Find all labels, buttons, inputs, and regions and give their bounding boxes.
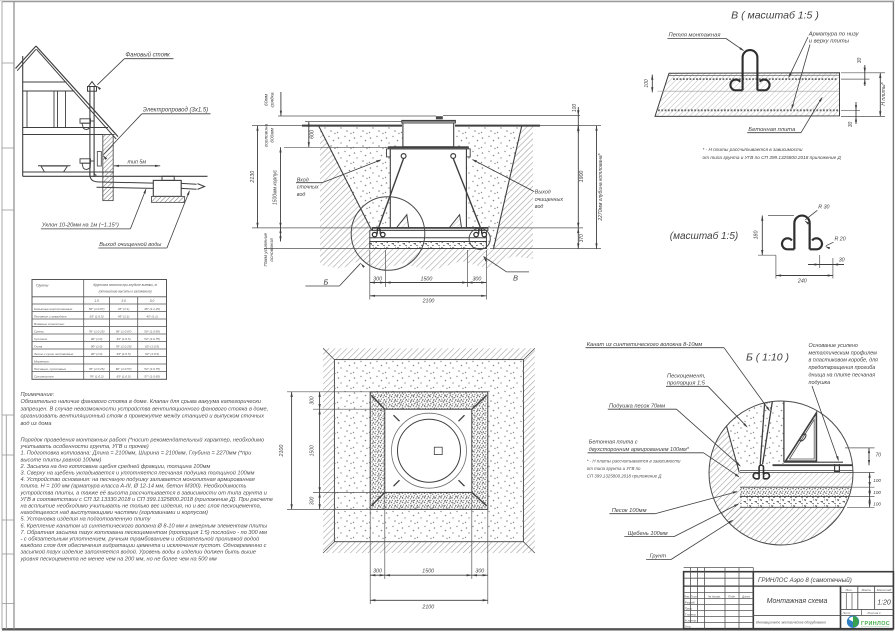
- svg-text:Основание усилено: Основание усилено: [809, 343, 858, 349]
- svg-text:Лист: Лист: [842, 611, 851, 615]
- svg-text:4. Устройство основания: на пе: 4. Устройство основания: на песчаную под…: [21, 476, 255, 483]
- svg-text:Утв.: Утв.: [685, 624, 692, 628]
- svg-text:5.0: 5.0: [150, 299, 155, 303]
- svg-text:63° (1:0.5): 63° (1:0.5): [145, 344, 159, 348]
- svg-text:30: 30: [839, 258, 845, 264]
- svg-text:Бетонная плита с: Бетонная плита с: [589, 439, 638, 445]
- svg-text:Фановый стояк: Фановый стояк: [125, 52, 171, 59]
- svg-text:300: 300: [475, 569, 484, 575]
- svg-text:63° (1:0.5): 63° (1:0.5): [90, 314, 104, 318]
- svg-text:и верху плиты: и верху плиты: [809, 39, 850, 45]
- svg-text:63° (1:0.5): 63° (1:0.5): [117, 374, 131, 378]
- svg-text:вод: вод: [297, 192, 306, 198]
- svg-text:Песчаные, супесчаные: Песчаные, супесчаные: [34, 367, 66, 371]
- svg-text:устройства плиты, а также её в: устройства плиты, а также её высота расс…: [20, 489, 267, 496]
- svg-text:R 30: R 30: [818, 205, 829, 211]
- svg-text:600: 600: [310, 130, 316, 139]
- svg-text:Петля монтажная: Петля монтажная: [669, 33, 721, 39]
- svg-text:горловина: горловина: [264, 123, 269, 147]
- svg-text:Масштаб: Масштаб: [877, 588, 892, 592]
- svg-text:300: 300: [373, 569, 382, 575]
- svg-text:грядка: грядка: [269, 92, 275, 107]
- svg-text:Подушка песок 70мм: Подушка песок 70мм: [609, 403, 665, 409]
- svg-text:организовать вентиляционный ст: организовать вентиляционный стояк в пром…: [21, 413, 265, 420]
- svg-text:каждого слоя для обеспечения г: каждого слоя для обеспечения гидратации …: [21, 543, 267, 549]
- svg-text:Выход: Выход: [535, 190, 551, 196]
- svg-text:Грунт: Грунт: [650, 554, 667, 560]
- svg-text:Щебень 100мм: Щебень 100мм: [628, 531, 668, 537]
- svg-text:2130: 2130: [250, 171, 256, 184]
- svg-text:100: 100: [644, 79, 650, 88]
- svg-text:Б ( 1:10 ): Б ( 1:10 ): [746, 352, 789, 364]
- svg-text:R 20: R 20: [835, 237, 846, 243]
- svg-text:Подп.: Подп.: [728, 594, 736, 598]
- svg-text:Инновационное экологическое об: Инновационное экологическое оборудование: [756, 620, 826, 624]
- svg-text:56° (1:0.67): 56° (1:0.67): [89, 307, 105, 311]
- svg-text:сточных: сточных: [297, 185, 319, 191]
- svg-text:1500: 1500: [310, 445, 316, 456]
- svg-text:двухсторонним армированием 100: двухсторонним армированием 100мм*: [589, 447, 690, 453]
- svg-text:Масса: Масса: [862, 588, 871, 592]
- svg-text:металлическим профилем: металлическим профилем: [809, 350, 878, 356]
- svg-text:53° (1:0.75): 53° (1:0.75): [144, 337, 160, 341]
- svg-text:Выход очищенной воды: Выход очищенной воды: [99, 241, 161, 248]
- svg-text:300: 300: [310, 396, 316, 405]
- svg-text:Пров.: Пров.: [685, 606, 693, 610]
- svg-text:38° (1:1.25): 38° (1:1.25): [144, 307, 160, 311]
- svg-text:(отношение высоты к заложению): (отношение высоты к заложению): [99, 289, 152, 293]
- svg-text:Грунты: Грунты: [36, 284, 49, 288]
- svg-text:1500: 1500: [422, 569, 434, 575]
- svg-text:УГВ в соответствии с СП 32.133: УГВ в соответствии с СП 32.13330.2018 и …: [20, 497, 273, 503]
- svg-text:№ докум.: № докум.: [708, 594, 721, 598]
- svg-text:от типа грунта и УГВ по СП 399: от типа грунта и УГВ по СП 399.1325800.2…: [703, 155, 842, 160]
- svg-text:6. Крепление канатом из синтет: 6. Крепление канатом из синтетического в…: [21, 523, 268, 529]
- svg-text:Влажные глинистые:: Влажные глинистые:: [34, 322, 65, 326]
- svg-text:основания: основания: [270, 238, 275, 262]
- svg-text:ГРИНЛОС Аэро 8 (самотечный): ГРИНЛОС Аэро 8 (самотечный): [758, 577, 852, 584]
- svg-text:Глина: Глина: [34, 344, 43, 348]
- svg-text:Лессы и сухие лессовидные: Лессы и сухие лессовидные: [33, 352, 74, 356]
- svg-text:76° (1:0.25): 76° (1:0.25): [89, 367, 105, 371]
- svg-text:1. Подготовка котлована: Длина: 1. Подготовка котлована: Длина = 2100мм,…: [21, 451, 252, 457]
- svg-text:30: 30: [848, 122, 854, 128]
- svg-text:Насыпные неуплотненные: Насыпные неуплотненные: [34, 307, 73, 311]
- svg-text:2100: 2100: [422, 299, 435, 305]
- svg-text:Песок 100мм: Песок 100мм: [612, 508, 647, 514]
- svg-text:Супесь: Супесь: [34, 329, 44, 333]
- svg-text:600мм: 600мм: [269, 128, 275, 143]
- svg-text:76° (1:0.25): 76° (1:0.25): [89, 329, 105, 333]
- svg-text:50° (1:0.85): 50° (1:0.85): [144, 329, 160, 333]
- svg-text:100: 100: [873, 490, 881, 495]
- svg-text:53° (1:0.75): 53° (1:0.75): [144, 367, 160, 371]
- svg-text:засыпкой пазух изделие заполня: засыпкой пазух изделие заполняется водой…: [20, 549, 256, 556]
- svg-text:запрещен. В случае невозможнос: запрещен. В случае невозможности устройс…: [20, 405, 269, 412]
- svg-text:вод: вод: [535, 204, 544, 210]
- svg-text:76° (1:0.25): 76° (1:0.25): [116, 344, 132, 348]
- svg-text:находящегося над выступающими: находящегося над выступающими частями (г…: [21, 510, 209, 516]
- svg-text:Б: Б: [324, 277, 329, 286]
- svg-text:1500: 1500: [421, 276, 433, 282]
- svg-text:300: 300: [310, 497, 316, 506]
- svg-text:57° (1:0.65): 57° (1:0.65): [144, 374, 160, 378]
- svg-text:1.5: 1.5: [94, 299, 99, 303]
- svg-text:56° (1:0.67): 56° (1:0.67): [116, 329, 132, 333]
- svg-text:2270мм глубина котлована*: 2270мм глубина котлована*: [598, 152, 604, 221]
- svg-text:Т.контр.: Т.контр.: [685, 612, 697, 616]
- svg-text:63° (1:0.5): 63° (1:0.5): [117, 352, 131, 356]
- svg-text:2100: 2100: [279, 445, 285, 458]
- svg-text:СП 399.1325800.2018 приложение: СП 399.1325800.2018 приложение Д: [587, 474, 662, 479]
- svg-text:45° (1:1): 45° (1:1): [146, 314, 158, 318]
- svg-text:5. Установка изделия на подгот: 5. Установка изделия на подготовленную п…: [21, 517, 152, 523]
- svg-text:90° (1:0): 90° (1:0): [91, 352, 103, 356]
- svg-text:300: 300: [472, 276, 481, 282]
- svg-text:1900: 1900: [579, 171, 585, 183]
- svg-text:учитывать особенности грунта,: учитывать особенности грунта, УГВ и проч…: [20, 444, 149, 450]
- svg-text:7. Обратная засыпка пазух котл: 7. Обратная засыпка пазух котлована песк…: [21, 529, 268, 536]
- svg-text:в пластиковом коробе, для: в пластиковом коробе, для: [809, 358, 879, 364]
- svg-text:Канат из синтетического волокн: Канат из синтетического волокна 8-10мм: [587, 342, 703, 348]
- svg-text:Дата: Дата: [741, 594, 750, 598]
- svg-text:очищенных: очищенных: [535, 197, 564, 203]
- svg-text:Пескоцемент,: Пескоцемент,: [667, 373, 706, 379]
- svg-text:Электропровод (3х1.5): Электропровод (3х1.5): [143, 108, 208, 114]
- svg-text:В ( масштаб 1:5 ): В ( масштаб 1:5 ): [731, 10, 819, 22]
- svg-text:2100: 2100: [421, 605, 434, 611]
- svg-text:на всплытие необходимо учитыв: на всплытие необходимо учитывать не толь…: [21, 504, 262, 510]
- svg-text:Примечание:: Примечание:: [21, 392, 55, 398]
- svg-text:90° (1:0): 90° (1:0): [91, 344, 103, 348]
- svg-text:уровня пескоцемента не менее ч: уровня пескоцемента не менее чем на 200 …: [20, 556, 217, 562]
- svg-text:45° (1:1): 45° (1:1): [118, 307, 130, 311]
- svg-text:Суглинистые: Суглинистые: [34, 374, 54, 378]
- svg-text:70: 70: [876, 453, 882, 459]
- svg-text:63° (1:0.5): 63° (1:0.5): [145, 352, 159, 356]
- svg-text:Монтажная схема: Монтажная схема: [767, 598, 828, 605]
- svg-text:* - Н плиты рассчитывается в з: * - Н плиты рассчитывается в зависимости: [703, 147, 803, 152]
- svg-text:2. Засыпка на дно котлована ще: 2. Засыпка на дно котлована щебня средне…: [20, 463, 211, 470]
- svg-text:Арматура по низу: Арматура по низу: [808, 31, 860, 37]
- svg-text:Суглинок: Суглинок: [34, 337, 48, 341]
- svg-text:Уклон 10-20мм на 1м (~1.15°): Уклон 10-20мм на 1м (~1.15°): [41, 223, 119, 229]
- svg-text:Крутизна откосов при глубине в: Крутизна откосов при глубине выемки, м: [93, 283, 157, 287]
- svg-text:плита. Н = 100 мм (арматура кл: плита. Н = 100 мм (арматура класса А-III…: [21, 484, 247, 490]
- svg-text:78° (1:0.2): 78° (1:0.2): [90, 374, 104, 378]
- svg-text:100: 100: [572, 104, 578, 113]
- svg-text:3.0: 3.0: [121, 299, 126, 303]
- svg-text:100: 100: [873, 502, 881, 507]
- svg-text:В: В: [513, 273, 518, 282]
- svg-text:Обязательно наличие фанового с: Обязательно наличие фанового стояка в до…: [21, 399, 262, 405]
- svg-text:180: 180: [754, 231, 760, 240]
- svg-text:высоте плиты равной 100мм): высоте плиты равной 100мм): [21, 456, 102, 463]
- svg-text:ГРИНЛОС: ГРИНЛОС: [861, 621, 890, 627]
- svg-text:пропорция 1:5: пропорция 1:5: [667, 381, 706, 387]
- svg-text:1500мм корпус: 1500мм корпус: [272, 169, 278, 205]
- svg-text:60мм: 60мм: [263, 93, 269, 106]
- svg-text:3. Сверху на щебень укладывает: 3. Сверху на щебень укладывается и уплот…: [21, 470, 255, 477]
- svg-text:подушка: подушка: [809, 380, 831, 386]
- svg-text:60° (1:0.57): 60° (1:0.57): [116, 367, 132, 371]
- svg-text:Моренные:: Моренные:: [34, 359, 50, 363]
- svg-text:Разраб.: Разраб.: [685, 600, 696, 604]
- svg-text:* - Н плиты рассчитывается в з: * - Н плиты рассчитывается в зависимости: [587, 459, 681, 464]
- svg-text:30: 30: [857, 58, 863, 64]
- svg-text:Песчаные и гравийные: Песчаные и гравийные: [34, 314, 67, 318]
- svg-text:90° (1:0): 90° (1:0): [91, 337, 103, 341]
- svg-text:63° (1:0.5): 63° (1:0.5): [117, 337, 131, 341]
- svg-text:300: 300: [373, 276, 382, 282]
- svg-text:вод из дома: вод из дома: [21, 421, 52, 427]
- svg-text:тип 5м: тип 5м: [127, 160, 146, 166]
- svg-text:Бетонная плита: Бетонная плита: [748, 127, 796, 133]
- svg-text:Листов 1: Листов 1: [866, 611, 881, 615]
- svg-text:Лист: Лист: [689, 594, 698, 598]
- svg-text:Лит.: Лит.: [844, 588, 852, 592]
- svg-text:предотвращения прогиба: предотвращения прогиба: [809, 365, 876, 371]
- svg-text:- с обязательным уплотнением,: - с обязательным уплотнением, ручным тра…: [21, 536, 260, 543]
- svg-text:днища на плите песчаная: днища на плите песчаная: [809, 373, 876, 379]
- svg-text:от типа грунта и УГВ по: от типа грунта и УГВ по: [587, 466, 641, 471]
- svg-text:45° (1:1): 45° (1:1): [118, 314, 130, 318]
- svg-text:370: 370: [579, 234, 585, 243]
- svg-text:100: 100: [873, 478, 881, 483]
- svg-text:Н.контр.: Н.контр.: [685, 618, 697, 622]
- svg-text:1:20: 1:20: [877, 600, 891, 607]
- svg-text:Н плиты*: Н плиты*: [881, 81, 887, 105]
- svg-text:(масштаб 1:5): (масштаб 1:5): [670, 230, 738, 242]
- svg-text:70мм усиление: 70мм усиление: [263, 233, 269, 267]
- svg-text:240: 240: [797, 278, 807, 284]
- svg-text:Порядок проведения монтажных р: Порядок проведения монтажных работ (*нос…: [21, 437, 265, 444]
